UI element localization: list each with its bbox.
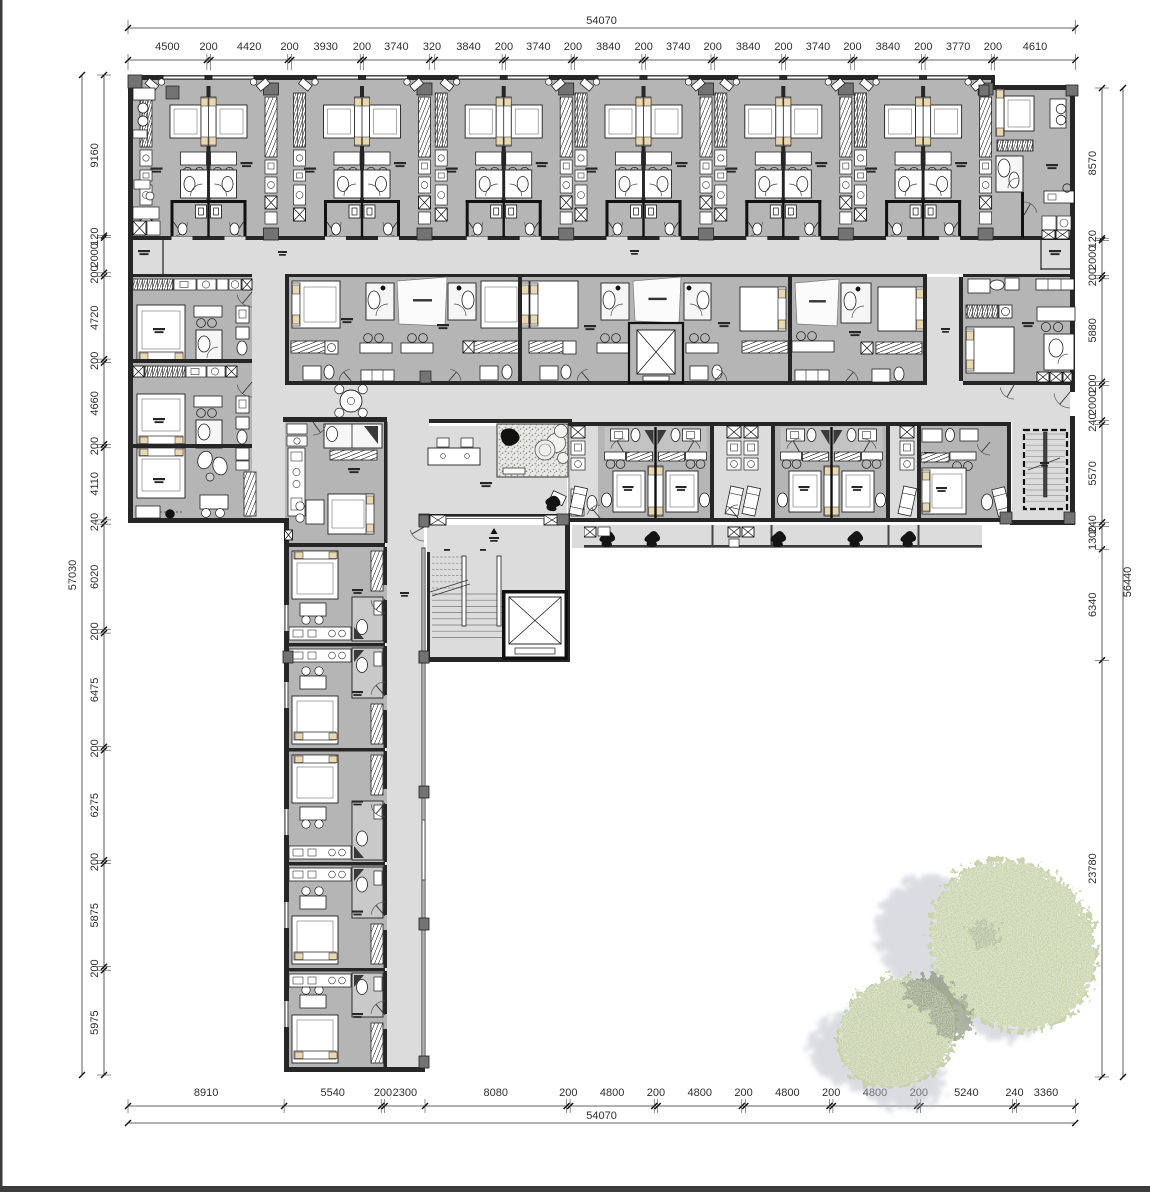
svg-text:4800: 4800 (600, 1087, 624, 1099)
svg-text:3740: 3740 (806, 41, 830, 53)
svg-text:5975: 5975 (89, 1010, 101, 1034)
svg-text:240: 240 (89, 513, 101, 531)
svg-text:200: 200 (495, 41, 513, 53)
svg-text:200: 200 (984, 41, 1002, 53)
svg-text:200: 200 (89, 739, 101, 757)
svg-text:9160: 9160 (89, 143, 101, 167)
svg-text:8570: 8570 (1087, 151, 1099, 175)
svg-text:6340: 6340 (1087, 592, 1099, 616)
svg-text:4660: 4660 (89, 391, 101, 415)
svg-text:4800: 4800 (688, 1087, 712, 1099)
svg-text:200: 200 (89, 622, 101, 640)
svg-text:200: 200 (564, 41, 582, 53)
svg-text:6275: 6275 (89, 793, 101, 817)
svg-text:1300: 1300 (1087, 526, 1099, 550)
svg-text:3740: 3740 (384, 41, 408, 53)
svg-text:5880: 5880 (1087, 318, 1099, 342)
svg-text:3840: 3840 (736, 41, 760, 53)
svg-text:4720: 4720 (89, 305, 101, 329)
svg-text:200: 200 (559, 1087, 577, 1099)
svg-text:240: 240 (1087, 413, 1099, 431)
svg-text:3930: 3930 (313, 41, 337, 53)
svg-text:3840: 3840 (876, 41, 900, 53)
svg-text:200: 200 (914, 41, 932, 53)
svg-text:200: 200 (843, 41, 861, 53)
svg-text:3770: 3770 (946, 41, 970, 53)
svg-text:4610: 4610 (1023, 41, 1047, 53)
svg-text:3840: 3840 (596, 41, 620, 53)
svg-text:2000: 2000 (89, 243, 101, 267)
svg-text:6020: 6020 (89, 565, 101, 589)
svg-text:5570: 5570 (1087, 461, 1099, 485)
svg-text:4800: 4800 (775, 1087, 799, 1099)
svg-text:8080: 8080 (484, 1087, 508, 1099)
svg-text:5875: 5875 (89, 903, 101, 927)
svg-text:200: 200 (89, 437, 101, 455)
svg-text:54070: 54070 (586, 15, 617, 27)
svg-text:200: 200 (353, 41, 371, 53)
svg-text:8910: 8910 (194, 1087, 218, 1099)
svg-text:200: 200 (374, 1087, 392, 1099)
svg-text:6475: 6475 (89, 678, 101, 702)
svg-text:4420: 4420 (237, 41, 261, 53)
svg-text:57030: 57030 (67, 560, 79, 591)
svg-text:2000: 2000 (1087, 246, 1099, 270)
svg-text:200: 200 (89, 265, 101, 283)
svg-text:200: 200 (774, 41, 792, 53)
svg-text:200: 200 (89, 959, 101, 977)
svg-text:5240: 5240 (954, 1087, 978, 1099)
svg-text:4500: 4500 (155, 41, 179, 53)
svg-text:320: 320 (423, 41, 441, 53)
svg-text:56440: 56440 (1122, 567, 1134, 598)
svg-text:54070: 54070 (586, 1110, 617, 1122)
svg-text:200: 200 (280, 41, 298, 53)
svg-text:23780: 23780 (1087, 853, 1099, 884)
svg-text:200: 200 (1087, 374, 1099, 392)
svg-text:200: 200 (89, 352, 101, 370)
svg-text:4110: 4110 (89, 472, 101, 496)
svg-text:2000: 2000 (1087, 391, 1099, 415)
svg-text:3840: 3840 (456, 41, 480, 53)
svg-text:200: 200 (635, 41, 653, 53)
svg-text:200: 200 (89, 853, 101, 871)
svg-text:3740: 3740 (526, 41, 550, 53)
svg-text:200: 200 (647, 1087, 665, 1099)
svg-text:200: 200 (704, 41, 722, 53)
svg-text:2300: 2300 (393, 1087, 417, 1099)
svg-text:200: 200 (1087, 268, 1099, 286)
svg-text:200: 200 (199, 41, 217, 53)
svg-text:240: 240 (1005, 1087, 1023, 1099)
svg-text:200: 200 (734, 1087, 752, 1099)
svg-text:3740: 3740 (666, 41, 690, 53)
svg-text:200: 200 (822, 1087, 840, 1099)
svg-text:3360: 3360 (1034, 1087, 1058, 1099)
svg-text:5540: 5540 (320, 1087, 344, 1099)
